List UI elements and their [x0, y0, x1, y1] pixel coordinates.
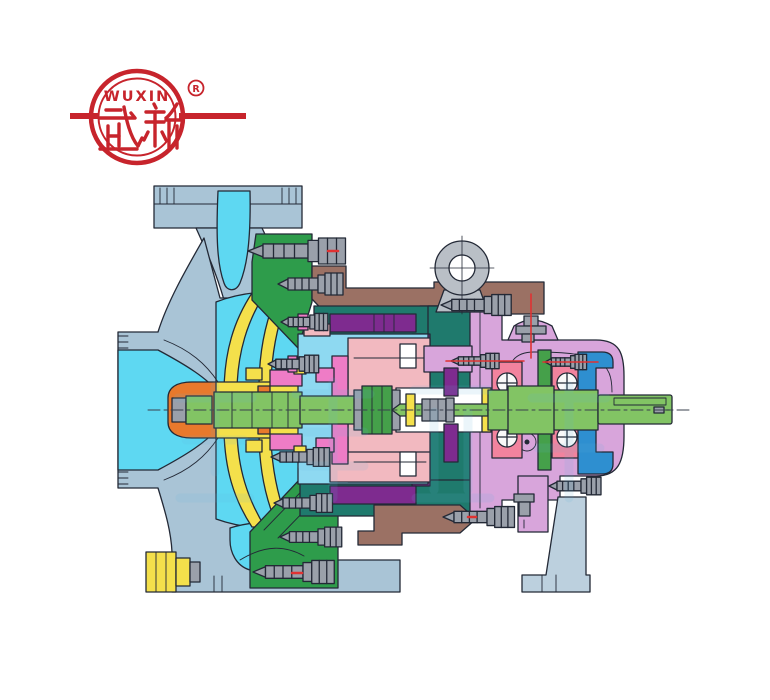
gland-follower-bottom: [444, 424, 458, 462]
oil-drain-plug: [514, 494, 534, 502]
logo-brand-latin: WUXIN: [104, 89, 170, 105]
pump-cutaway-svg: WUXIN R: [0, 0, 770, 700]
casing-drain-plug: [146, 552, 176, 592]
pump-sectional-drawing: [118, 186, 690, 592]
screenshot: WUXIN R: [0, 0, 770, 700]
registered-trademark-icon: R: [192, 84, 200, 95]
wuxin-logo: WUXIN R: [70, 71, 246, 163]
